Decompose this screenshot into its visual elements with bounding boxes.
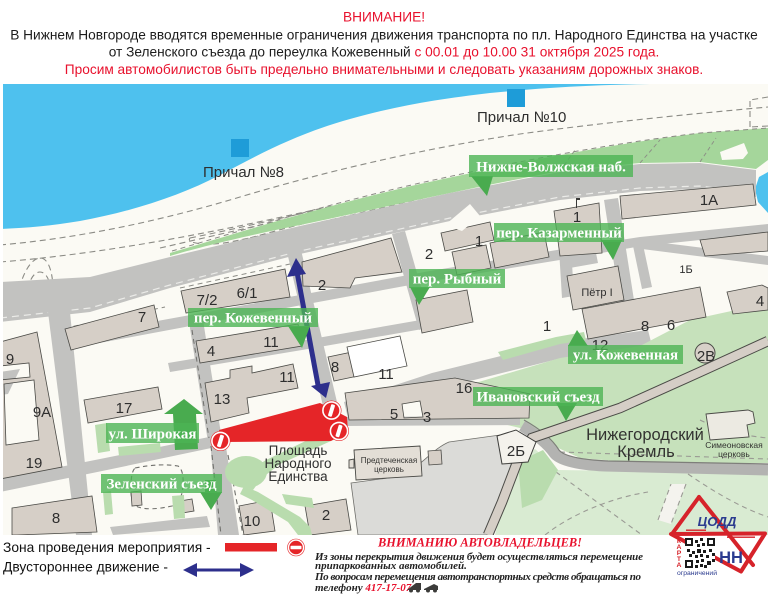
svg-text:пер. Казарменный: пер. Казарменный — [496, 226, 622, 242]
svg-text:6/1: 6/1 — [237, 285, 258, 302]
svg-text:В Нижнем Новгороде вводятся вр: В Нижнем Новгороде вводятся временные ог… — [10, 28, 758, 43]
svg-text:ул. Кожевенная: ул. Кожевенная — [573, 348, 678, 364]
svg-text:Зеленский съезд: Зеленский съезд — [106, 477, 216, 493]
svg-text:9: 9 — [6, 351, 14, 368]
svg-text:13: 13 — [214, 391, 231, 408]
svg-text:Нижне-Волжская наб.: Нижне-Волжская наб. — [476, 160, 626, 176]
svg-text:Зона проведения мероприятия -: Зона проведения мероприятия - — [3, 540, 211, 555]
svg-text:2В: 2В — [697, 348, 715, 365]
svg-text:8: 8 — [641, 318, 649, 335]
svg-text:4: 4 — [756, 293, 764, 310]
svg-text:2: 2 — [318, 277, 326, 294]
svg-text:от Зеленского съезда до переул: от Зеленского съезда до переулка Кожевен… — [109, 45, 660, 60]
svg-text:17: 17 — [116, 400, 133, 417]
svg-text:ВНИМАНИЮ АВТОВЛАДЕЛЬЦЕВ!: ВНИМАНИЮ АВТОВЛАДЕЛЬЦЕВ! — [377, 536, 582, 550]
svg-text:5: 5 — [390, 406, 398, 423]
svg-text:11: 11 — [378, 366, 394, 383]
svg-text:6: 6 — [667, 317, 675, 334]
svg-text:НН: НН — [719, 549, 743, 567]
svg-text:4: 4 — [207, 343, 215, 360]
svg-text:7/2: 7/2 — [197, 292, 218, 309]
svg-text:Просим автомобилистов быть пре: Просим автомобилистов быть предельно вни… — [65, 62, 703, 77]
svg-text:3: 3 — [423, 409, 431, 426]
svg-text:Двустороннее движение -: Двустороннее движение - — [3, 560, 168, 575]
svg-text:Причал №8: Причал №8 — [203, 164, 284, 181]
svg-text:7: 7 — [138, 309, 146, 326]
svg-text:Ивановский съезд: Ивановский съезд — [476, 390, 599, 406]
svg-text:9А: 9А — [33, 404, 51, 421]
svg-text:ВНИМАНИЕ!: ВНИМАНИЕ! — [343, 10, 425, 25]
svg-text:2: 2 — [425, 246, 433, 263]
svg-text:1А: 1А — [700, 192, 718, 209]
svg-text:ул. Широкая: ул. Широкая — [108, 427, 196, 443]
svg-text:пер. Рыбный: пер. Рыбный — [413, 272, 502, 288]
svg-text:ЦОДД: ЦОДД — [698, 514, 737, 529]
svg-text:Пётр I: Пётр I — [581, 287, 612, 299]
svg-text:ограничений: ограничений — [677, 569, 717, 577]
svg-text:8: 8 — [52, 510, 60, 527]
svg-text:1: 1 — [475, 233, 483, 250]
svg-text:16: 16 — [456, 380, 473, 397]
svg-text:Предтеченская: Предтеченская — [361, 456, 417, 465]
svg-text:1Б: 1Б — [679, 264, 692, 276]
svg-text:Кремль: Кремль — [617, 443, 675, 461]
svg-text:Причал №10: Причал №10 — [477, 109, 566, 126]
svg-text:пер. Кожевенный: пер. Кожевенный — [194, 311, 312, 327]
svg-text:2: 2 — [322, 507, 330, 524]
svg-text:церковь: церковь — [718, 449, 750, 459]
svg-text:Нижегородский: Нижегородский — [586, 426, 704, 444]
svg-text:2Б: 2Б — [507, 443, 525, 460]
svg-text:10: 10 — [244, 513, 261, 530]
svg-text:19: 19 — [26, 455, 43, 472]
svg-text:11: 11 — [279, 369, 295, 386]
svg-text:Единства: Единства — [268, 469, 328, 484]
svg-text:11: 11 — [263, 334, 279, 351]
svg-text:телефону 417-17-07: телефону 417-17-07 — [315, 582, 412, 594]
svg-text:1: 1 — [543, 318, 551, 335]
svg-text:8: 8 — [331, 359, 339, 376]
svg-text:церковь: церковь — [374, 465, 404, 474]
